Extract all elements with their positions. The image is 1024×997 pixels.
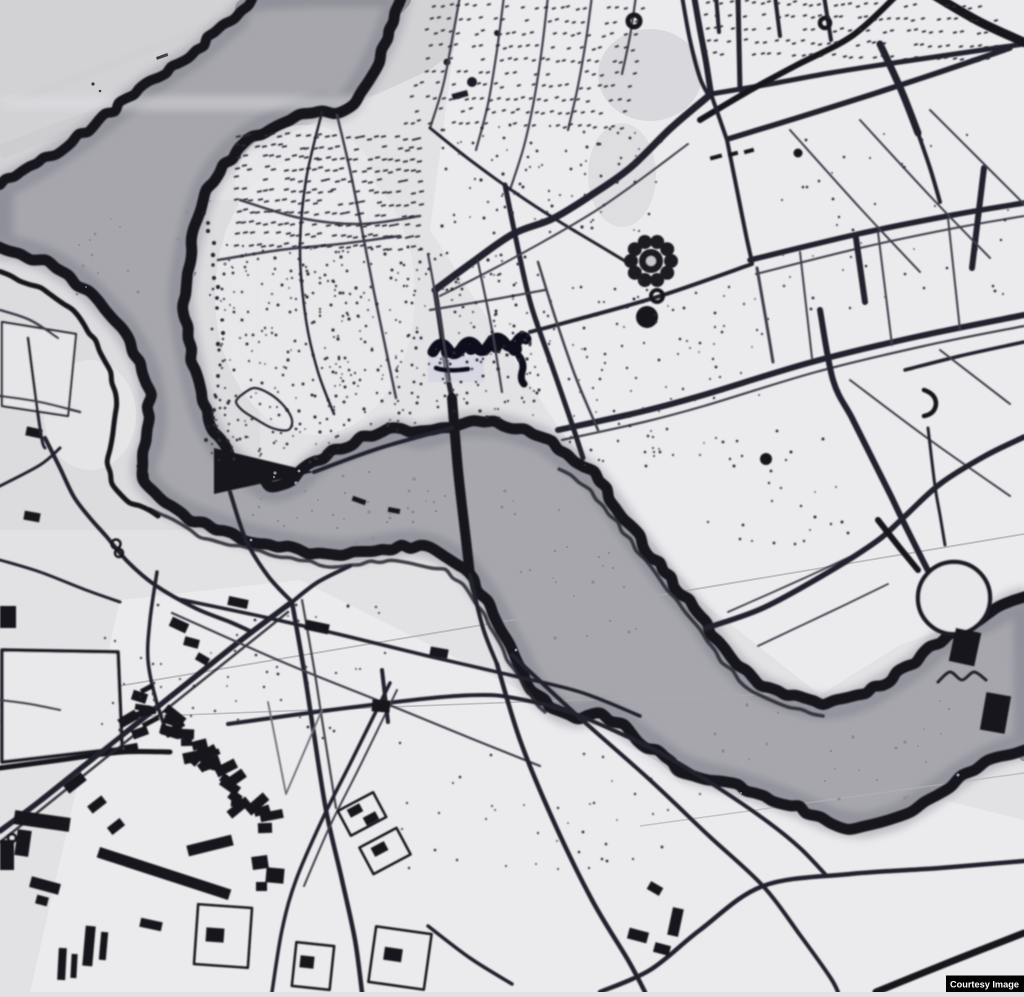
svg-text:Courtesy Image: Courtesy Image bbox=[950, 980, 1019, 990]
